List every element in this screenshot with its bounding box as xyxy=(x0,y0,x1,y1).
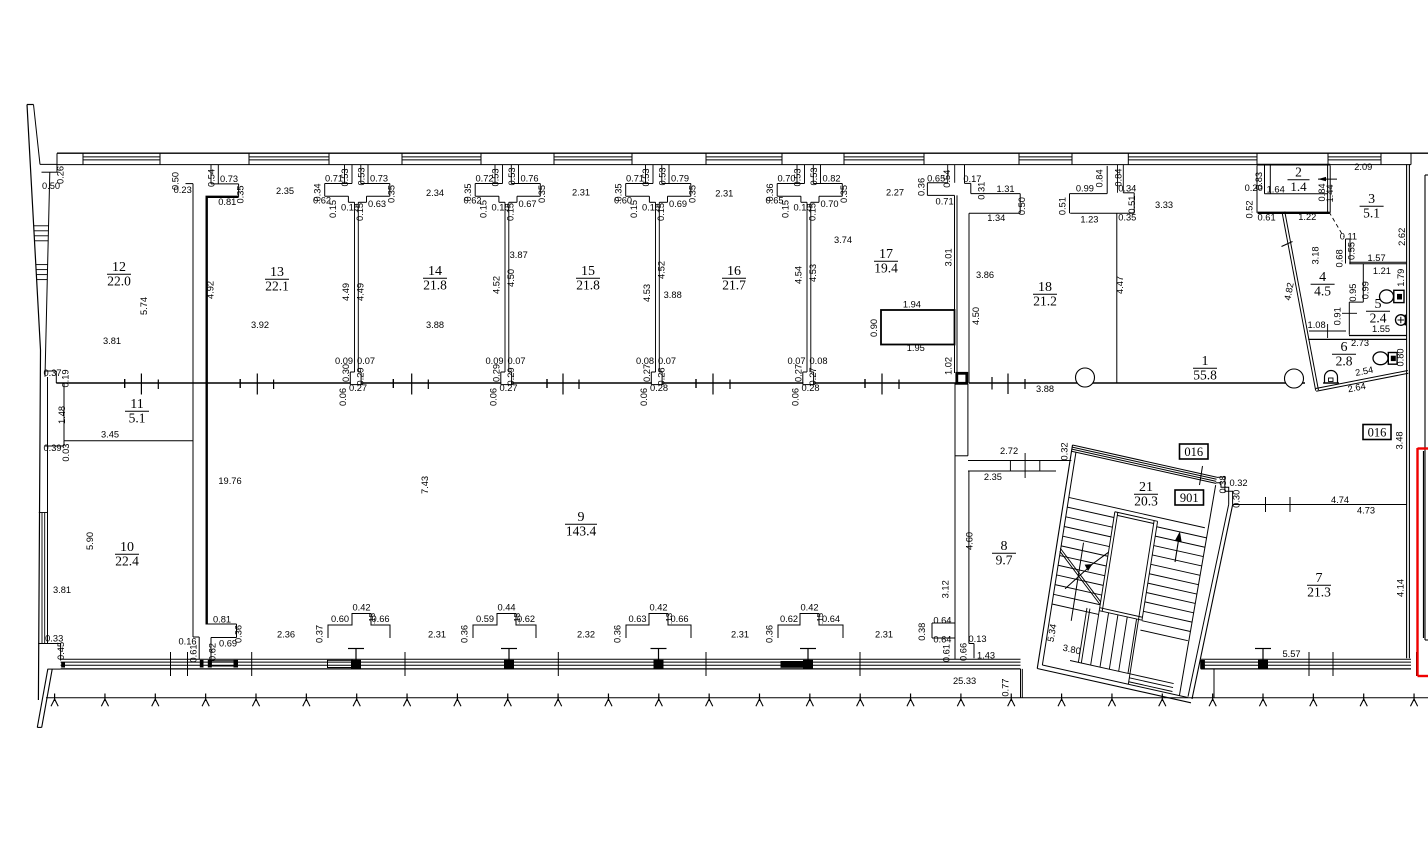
svg-text:0.36: 0.36 xyxy=(917,178,927,196)
svg-text:7.43: 7.43 xyxy=(420,476,430,494)
svg-text:4.73: 4.73 xyxy=(1357,506,1375,516)
svg-text:143.4: 143.4 xyxy=(566,524,597,539)
svg-text:0.69: 0.69 xyxy=(669,199,687,209)
svg-text:3.88: 3.88 xyxy=(664,290,682,300)
svg-text:0.32: 0.32 xyxy=(1060,442,1070,460)
svg-text:1.94: 1.94 xyxy=(903,299,921,309)
svg-text:1.23: 1.23 xyxy=(1080,214,1098,224)
svg-text:2: 2 xyxy=(1295,165,1302,180)
svg-text:0.35: 0.35 xyxy=(537,185,547,203)
svg-text:0.99: 0.99 xyxy=(1360,281,1370,299)
svg-text:0.42: 0.42 xyxy=(352,603,370,613)
svg-text:0.71: 0.71 xyxy=(936,196,954,206)
svg-text:0.15: 0.15 xyxy=(808,203,818,221)
svg-text:3.48: 3.48 xyxy=(1395,431,1405,449)
svg-text:1.95: 1.95 xyxy=(907,343,925,353)
svg-text:0.64: 0.64 xyxy=(822,614,840,624)
svg-text:4.50: 4.50 xyxy=(506,269,516,287)
svg-text:3.45: 3.45 xyxy=(101,430,119,440)
svg-text:2.31: 2.31 xyxy=(731,630,749,640)
svg-text:0.15: 0.15 xyxy=(656,203,666,221)
svg-text:3.81: 3.81 xyxy=(103,336,121,346)
svg-text:0.53: 0.53 xyxy=(491,168,501,186)
svg-text:0.11: 0.11 xyxy=(1340,232,1357,242)
svg-text:20.3: 20.3 xyxy=(1134,494,1158,509)
svg-text:0.07: 0.07 xyxy=(507,356,525,366)
svg-text:0.77: 0.77 xyxy=(1000,679,1010,697)
svg-text:0.62: 0.62 xyxy=(780,614,798,624)
svg-text:0.51: 0.51 xyxy=(1058,197,1068,215)
svg-text:1.4: 1.4 xyxy=(1290,179,1307,194)
svg-text:2.62: 2.62 xyxy=(1397,228,1407,246)
svg-text:0.53: 0.53 xyxy=(793,168,803,186)
svg-text:0.73: 0.73 xyxy=(370,174,388,184)
svg-text:4.92: 4.92 xyxy=(206,281,216,299)
svg-text:0.37: 0.37 xyxy=(43,368,61,378)
svg-text:0.95: 0.95 xyxy=(1348,284,1358,302)
svg-text:21.8: 21.8 xyxy=(423,278,447,293)
svg-text:4.49: 4.49 xyxy=(356,283,366,301)
svg-text:0.84: 0.84 xyxy=(1095,169,1105,187)
svg-text:0.62: 0.62 xyxy=(208,643,218,661)
svg-text:0.15: 0.15 xyxy=(506,203,516,221)
svg-text:0.15: 0.15 xyxy=(328,200,338,218)
svg-text:0.36: 0.36 xyxy=(765,625,775,643)
svg-text:21.2: 21.2 xyxy=(1033,294,1057,309)
svg-text:0.51: 0.51 xyxy=(1127,196,1137,214)
svg-text:901: 901 xyxy=(1180,491,1199,505)
svg-text:0.68: 0.68 xyxy=(1335,249,1345,267)
svg-text:0.69: 0.69 xyxy=(219,639,237,649)
svg-text:3.18: 3.18 xyxy=(1311,246,1321,264)
svg-text:0.31: 0.31 xyxy=(977,182,987,200)
svg-text:0.33: 0.33 xyxy=(45,633,63,643)
svg-text:21.8: 21.8 xyxy=(576,278,600,293)
svg-text:22.0: 22.0 xyxy=(107,274,131,289)
svg-text:5.74: 5.74 xyxy=(139,297,149,315)
svg-text:3.88: 3.88 xyxy=(1036,384,1054,394)
svg-text:0.06: 0.06 xyxy=(639,388,649,406)
svg-text:0.39: 0.39 xyxy=(43,443,61,453)
svg-text:0.27: 0.27 xyxy=(642,364,652,382)
svg-text:0.99: 0.99 xyxy=(1076,184,1094,194)
svg-text:1.57: 1.57 xyxy=(1368,253,1386,263)
svg-text:0.06: 0.06 xyxy=(791,388,801,406)
svg-text:0.76: 0.76 xyxy=(520,174,538,184)
svg-text:2.73: 2.73 xyxy=(1351,338,1369,348)
svg-text:0.53: 0.53 xyxy=(809,167,819,185)
svg-text:0.27: 0.27 xyxy=(794,364,804,382)
svg-text:0.53: 0.53 xyxy=(340,168,350,186)
svg-text:1.02: 1.02 xyxy=(943,357,953,375)
svg-text:0.19: 0.19 xyxy=(61,369,71,387)
svg-text:25.33: 25.33 xyxy=(953,676,976,686)
svg-text:2.4: 2.4 xyxy=(1370,311,1387,326)
svg-text:5.1: 5.1 xyxy=(129,411,146,426)
svg-text:5.90: 5.90 xyxy=(85,532,95,550)
svg-text:3.12: 3.12 xyxy=(941,580,951,598)
svg-text:0.06: 0.06 xyxy=(489,388,499,406)
svg-text:0.15: 0.15 xyxy=(355,203,365,221)
svg-text:0.64: 0.64 xyxy=(933,616,951,626)
svg-text:3.74: 3.74 xyxy=(834,235,852,245)
svg-text:0.35: 0.35 xyxy=(839,185,849,203)
svg-text:0.27: 0.27 xyxy=(349,383,367,393)
svg-text:4.52: 4.52 xyxy=(492,276,502,294)
svg-text:0.81: 0.81 xyxy=(213,615,231,625)
svg-text:0.91: 0.91 xyxy=(1332,307,1342,325)
svg-text:0.35: 0.35 xyxy=(236,185,246,203)
svg-text:5.1: 5.1 xyxy=(1363,206,1380,221)
svg-text:0.45: 0.45 xyxy=(56,642,66,660)
svg-text:4.52: 4.52 xyxy=(657,261,667,279)
svg-text:0.28: 0.28 xyxy=(650,383,668,393)
svg-text:0.66: 0.66 xyxy=(670,614,688,624)
svg-text:0.03: 0.03 xyxy=(61,444,71,462)
svg-text:1.31: 1.31 xyxy=(996,184,1014,194)
svg-text:0.29: 0.29 xyxy=(492,364,502,382)
svg-text:4.47: 4.47 xyxy=(1115,276,1125,294)
svg-text:0.90: 0.90 xyxy=(869,319,879,337)
svg-text:4.53: 4.53 xyxy=(808,264,818,282)
svg-text:0.42: 0.42 xyxy=(649,603,667,613)
svg-text:4.74: 4.74 xyxy=(1331,495,1349,505)
svg-text:016: 016 xyxy=(1184,445,1203,459)
svg-text:0.36: 0.36 xyxy=(613,625,623,643)
svg-text:19.4: 19.4 xyxy=(874,261,898,276)
svg-text:0.70: 0.70 xyxy=(820,199,838,209)
svg-text:0.55: 0.55 xyxy=(1346,242,1356,260)
svg-text:0.42: 0.42 xyxy=(800,603,818,613)
svg-text:0.59: 0.59 xyxy=(476,614,494,624)
svg-text:4.50: 4.50 xyxy=(971,307,981,325)
svg-text:2.31: 2.31 xyxy=(428,630,446,640)
svg-text:0.54: 0.54 xyxy=(942,170,952,188)
svg-text:2.27: 2.27 xyxy=(886,187,904,197)
svg-text:2.34: 2.34 xyxy=(426,188,444,198)
svg-text:0.62: 0.62 xyxy=(517,614,535,624)
svg-text:0.13: 0.13 xyxy=(968,634,986,644)
svg-text:0.35: 0.35 xyxy=(688,185,698,203)
svg-text:0.66: 0.66 xyxy=(371,614,389,624)
svg-text:5.57: 5.57 xyxy=(1282,649,1300,659)
svg-text:3.86: 3.86 xyxy=(976,270,994,280)
svg-text:21.7: 21.7 xyxy=(722,278,746,293)
svg-text:1.64: 1.64 xyxy=(1267,185,1285,195)
svg-text:2.8: 2.8 xyxy=(1336,354,1353,369)
svg-text:19.76: 19.76 xyxy=(218,476,241,486)
svg-text:0.06: 0.06 xyxy=(338,388,348,406)
svg-text:9.7: 9.7 xyxy=(996,553,1013,568)
svg-text:0.82: 0.82 xyxy=(822,174,840,184)
svg-text:0.20: 0.20 xyxy=(1245,183,1263,193)
svg-text:4.14: 4.14 xyxy=(1396,579,1406,597)
svg-text:1.48: 1.48 xyxy=(57,406,67,424)
svg-text:0.73: 0.73 xyxy=(220,174,238,184)
svg-text:0.07: 0.07 xyxy=(357,356,375,366)
svg-text:2.35: 2.35 xyxy=(276,186,294,196)
svg-text:0.50: 0.50 xyxy=(1017,197,1027,215)
svg-text:0.66: 0.66 xyxy=(959,643,969,661)
svg-text:4.54: 4.54 xyxy=(794,266,804,284)
svg-text:2.31: 2.31 xyxy=(572,188,590,198)
svg-text:1.22: 1.22 xyxy=(1298,212,1316,222)
svg-text:0.07: 0.07 xyxy=(658,356,676,366)
svg-text:2.31: 2.31 xyxy=(715,188,733,198)
svg-text:0.35: 0.35 xyxy=(387,185,397,203)
svg-text:0.15: 0.15 xyxy=(479,200,489,218)
svg-text:0.53: 0.53 xyxy=(507,167,517,185)
svg-text:0.81: 0.81 xyxy=(218,197,236,207)
svg-text:0.35: 0.35 xyxy=(1118,212,1136,222)
svg-text:0.79: 0.79 xyxy=(671,174,689,184)
svg-text:2.32: 2.32 xyxy=(577,630,595,640)
svg-text:22.1: 22.1 xyxy=(265,279,289,294)
svg-text:0.53: 0.53 xyxy=(658,167,668,185)
svg-text:4.5: 4.5 xyxy=(1314,284,1331,299)
svg-text:0.61: 0.61 xyxy=(189,644,199,662)
svg-text:2.72: 2.72 xyxy=(1000,446,1018,456)
svg-text:0.30: 0.30 xyxy=(1232,490,1242,508)
svg-text:0.44: 0.44 xyxy=(497,603,515,613)
svg-text:1.44: 1.44 xyxy=(1325,184,1335,202)
svg-text:0.63: 0.63 xyxy=(368,199,386,209)
svg-text:0.15: 0.15 xyxy=(781,200,791,218)
svg-text:0.64: 0.64 xyxy=(933,635,951,645)
svg-text:0.53: 0.53 xyxy=(641,168,651,186)
svg-text:2.09: 2.09 xyxy=(1354,162,1372,172)
svg-text:3.87: 3.87 xyxy=(510,250,528,260)
svg-text:0.54: 0.54 xyxy=(207,169,217,187)
svg-text:2.35: 2.35 xyxy=(984,472,1002,482)
svg-text:1.79: 1.79 xyxy=(1396,269,1406,287)
svg-text:3.92: 3.92 xyxy=(251,320,269,330)
svg-text:0.15: 0.15 xyxy=(629,200,639,218)
svg-text:22.4: 22.4 xyxy=(115,554,139,569)
svg-text:1.34: 1.34 xyxy=(987,213,1005,223)
svg-text:0.38: 0.38 xyxy=(917,623,927,641)
svg-text:0.63: 0.63 xyxy=(628,614,646,624)
svg-text:0.30: 0.30 xyxy=(341,364,351,382)
svg-text:3.88: 3.88 xyxy=(426,320,444,330)
svg-text:3.33: 3.33 xyxy=(1155,200,1173,210)
svg-text:3.81: 3.81 xyxy=(53,585,71,595)
svg-text:0.08: 0.08 xyxy=(809,356,827,366)
svg-text:0.38: 0.38 xyxy=(1218,475,1228,493)
svg-text:0.27: 0.27 xyxy=(499,383,517,393)
svg-text:4.49: 4.49 xyxy=(341,283,351,301)
svg-text:016: 016 xyxy=(1368,425,1387,439)
svg-text:0.52: 0.52 xyxy=(1244,200,1254,218)
svg-text:0.60: 0.60 xyxy=(331,614,349,624)
svg-text:3.01: 3.01 xyxy=(943,248,953,266)
svg-text:0.26: 0.26 xyxy=(56,166,66,184)
svg-text:1.21: 1.21 xyxy=(1373,266,1391,276)
svg-text:21.3: 21.3 xyxy=(1307,585,1331,600)
svg-text:0.61: 0.61 xyxy=(1258,213,1276,223)
svg-text:0.67: 0.67 xyxy=(518,199,536,209)
svg-text:1.55: 1.55 xyxy=(1372,324,1390,334)
svg-text:1.08: 1.08 xyxy=(1308,320,1326,330)
svg-text:0.32: 0.32 xyxy=(1229,478,1247,488)
svg-text:0.53: 0.53 xyxy=(357,167,367,185)
svg-text:4.53: 4.53 xyxy=(642,284,652,302)
svg-text:0.37: 0.37 xyxy=(315,625,325,643)
svg-text:2.36: 2.36 xyxy=(277,630,295,640)
svg-text:0.28: 0.28 xyxy=(801,383,819,393)
svg-text:0.36: 0.36 xyxy=(460,625,470,643)
svg-text:0.34: 0.34 xyxy=(1118,184,1136,194)
svg-text:2.31: 2.31 xyxy=(875,630,893,640)
svg-text:4.60: 4.60 xyxy=(965,532,975,550)
svg-text:55.8: 55.8 xyxy=(1193,368,1217,383)
svg-text:0.23: 0.23 xyxy=(174,185,192,195)
